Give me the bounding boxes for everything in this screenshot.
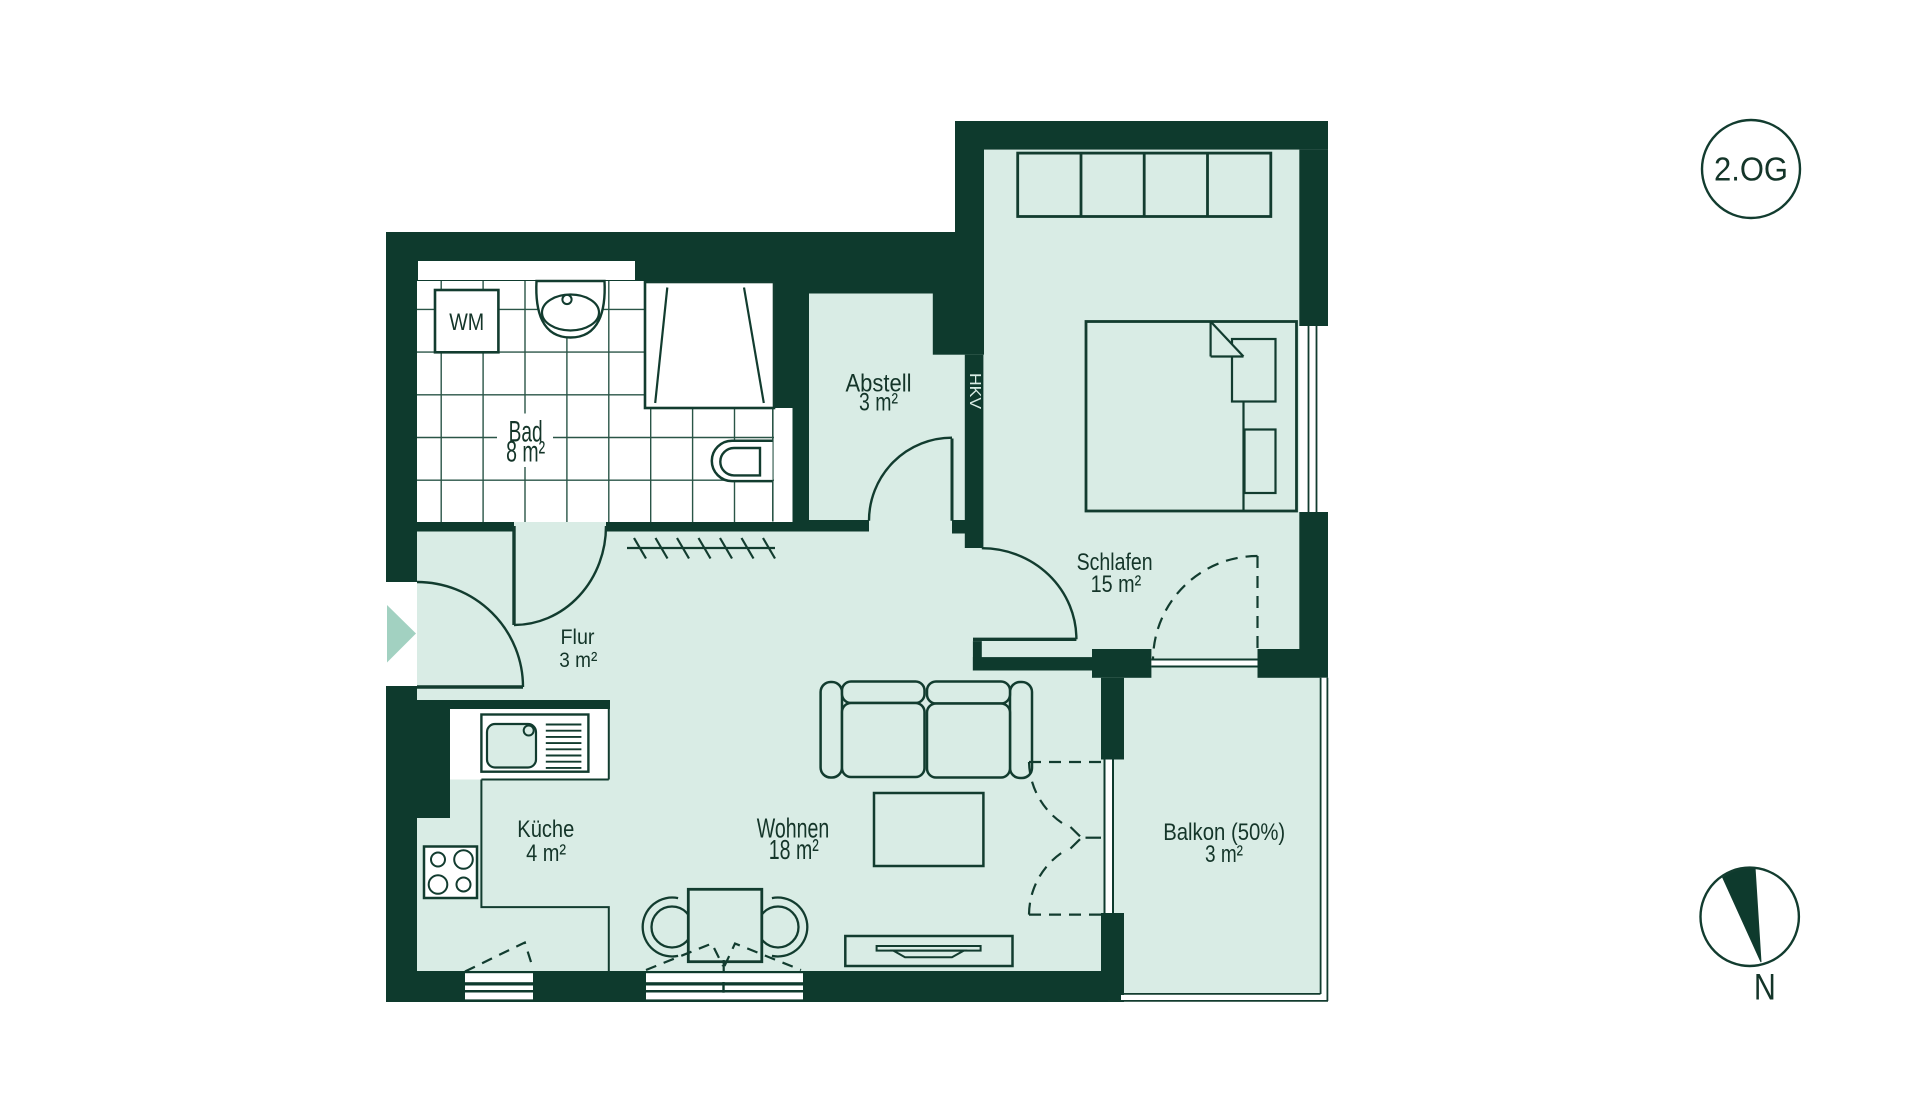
svg-text:3 m²: 3 m² (1205, 841, 1243, 868)
svg-text:3 m²: 3 m² (859, 388, 898, 416)
svg-text:Flur: Flur (561, 625, 595, 649)
svg-text:8 m²: 8 m² (506, 436, 545, 469)
svg-text:HKV: HKV (966, 373, 983, 409)
svg-text:2.OG: 2.OG (1714, 151, 1788, 188)
svg-text:4 m²: 4 m² (526, 840, 566, 867)
svg-text:18 m²: 18 m² (769, 834, 819, 865)
svg-text:15 m²: 15 m² (1091, 571, 1142, 598)
svg-text:WM: WM (449, 309, 484, 336)
svg-text:N: N (1754, 966, 1776, 1007)
svg-text:3 m²: 3 m² (559, 648, 597, 672)
